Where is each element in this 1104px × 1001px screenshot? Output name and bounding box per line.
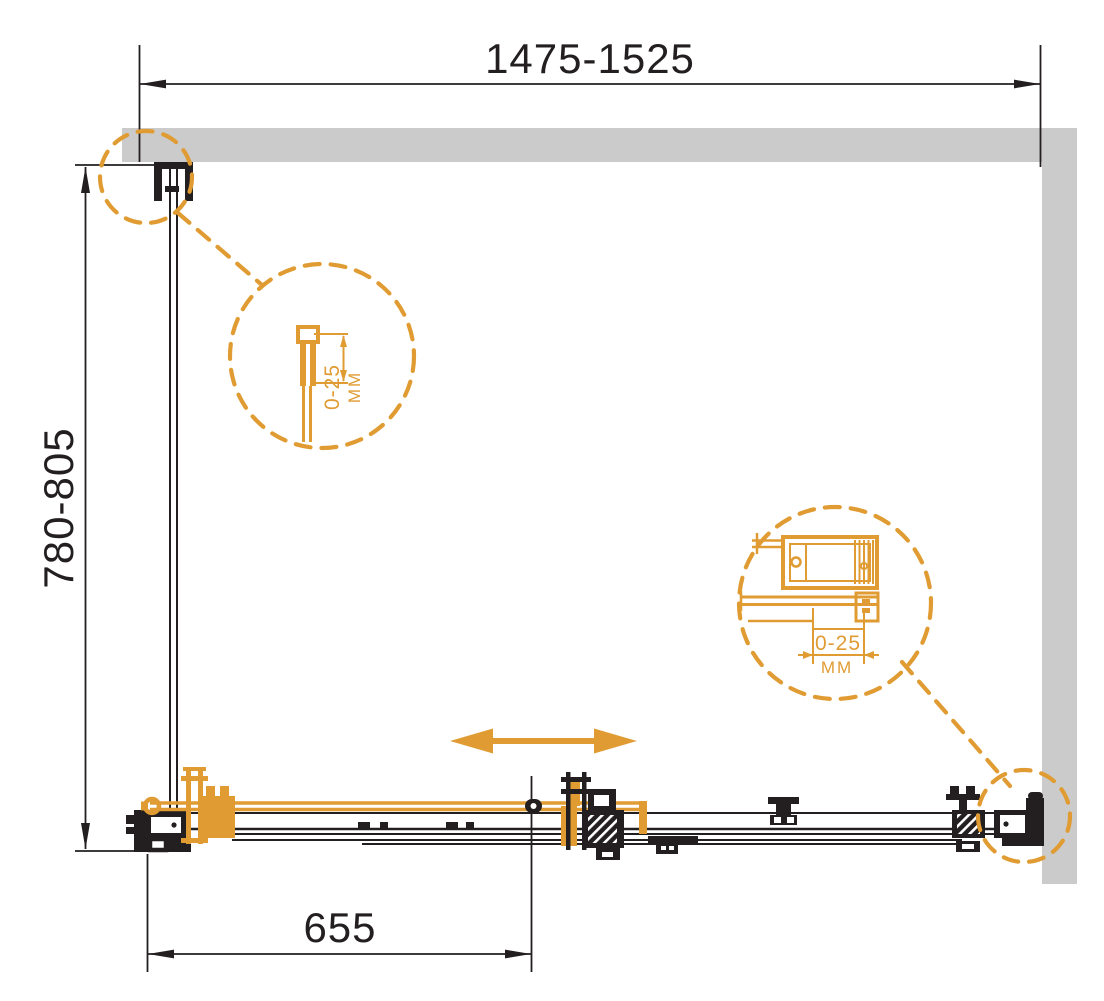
detail-right-unit-label: MM xyxy=(821,658,853,677)
slide-direction-arrow-icon xyxy=(450,729,637,754)
side-glass-panel xyxy=(154,162,193,813)
callout-circle-detail-left xyxy=(230,264,414,448)
detail-left-range-label: 0-25 xyxy=(321,364,344,410)
detail-left-wall-profile-adjustment: 0-25 MM xyxy=(298,327,364,442)
wall-top xyxy=(122,128,1077,162)
roller-bracket-mid xyxy=(768,797,799,825)
arrowhead-left xyxy=(148,950,174,959)
rail-clip xyxy=(446,822,458,829)
technical-drawing-canvas: 1475-1525 780-805 655 xyxy=(0,0,1104,1001)
wall-profile-right xyxy=(994,792,1044,846)
rail-clip xyxy=(358,822,370,829)
detail-right-range-label: 0-25 xyxy=(815,632,861,655)
dimension-side-depth: 780-805 xyxy=(35,165,192,851)
detail-left-unit-label: MM xyxy=(345,371,364,403)
door-edge xyxy=(639,801,647,834)
rail-clip xyxy=(380,822,388,829)
callout-leader-left xyxy=(178,213,262,285)
shower-enclosure-top-view: 1475-1525 780-805 655 xyxy=(0,0,1104,1001)
door-roller-block xyxy=(202,796,235,838)
arrowhead-right xyxy=(505,950,531,959)
dimension-label-top: 1475-1525 xyxy=(485,35,695,82)
door-stopper-knob xyxy=(525,799,542,813)
arrowhead-right xyxy=(1014,80,1040,89)
arrowhead-left xyxy=(140,80,166,89)
dimension-label-left: 780-805 xyxy=(35,427,82,588)
arrowhead-up xyxy=(81,167,90,193)
dimension-label-bottom: 655 xyxy=(303,904,376,951)
rail-clip xyxy=(466,822,474,829)
detail-callouts xyxy=(100,131,1070,862)
arrowhead-down xyxy=(81,823,90,849)
roller-carriage-center xyxy=(561,772,624,860)
callout-leader-right xyxy=(902,662,1010,786)
wall-profile-left xyxy=(126,810,191,852)
detail-right-roller-adjustment: 0-25 MM xyxy=(741,533,879,677)
wall-structure xyxy=(122,128,1077,884)
glass-clamp-hatch xyxy=(588,815,617,843)
